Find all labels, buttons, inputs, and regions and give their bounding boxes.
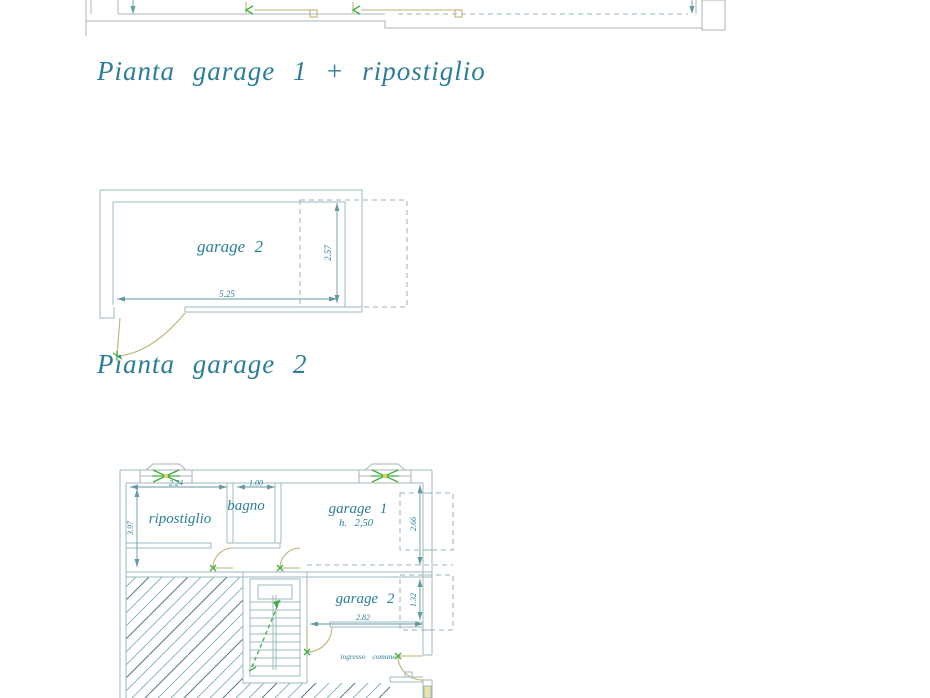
room-label-garage2: garage 2 bbox=[336, 591, 395, 607]
dim-garage2-opening: 1.32 bbox=[409, 579, 423, 620]
dim-bagno-width: 1.00 bbox=[237, 479, 275, 490]
drawing-sheet: Pianta garage 1 + ripostiglio 2.57 5.25 … bbox=[0, 0, 930, 698]
floor-plan-lower: 2.24 1.00 3.97 2.66 1.32 bbox=[110, 460, 480, 698]
svg-text:2.57: 2.57 bbox=[323, 245, 333, 261]
room-label-ripostiglio: ripostiglio bbox=[149, 511, 212, 527]
dim-height: 2.57 bbox=[323, 203, 340, 303]
door-arc-icon bbox=[210, 548, 233, 571]
door-arc-icon bbox=[304, 627, 332, 655]
room-label-garage1: garage 1 bbox=[329, 501, 388, 517]
dim-garage2-width: 2.82 bbox=[310, 613, 423, 627]
garage-door-dashed-opening bbox=[400, 493, 453, 550]
door-symbol-icon bbox=[353, 2, 462, 17]
dim-width: 5.25 bbox=[117, 289, 337, 302]
dim-arrow-left bbox=[131, 0, 136, 14]
room-label-garage2: garage 2 bbox=[197, 237, 263, 256]
door-arc-icon bbox=[277, 548, 300, 571]
plan-title-garage1-ripostiglio: Pianta garage 1 + ripostiglio bbox=[97, 56, 486, 87]
dim-garage1-opening: 2.66 bbox=[409, 485, 423, 565]
garage-door-dashed-opening bbox=[300, 200, 407, 307]
window-icon bbox=[140, 464, 192, 484]
dim-left-depth: 3.97 bbox=[126, 489, 140, 567]
room-note-garage1-height: h. 2,50 bbox=[339, 518, 374, 529]
stair-direction-arrow-icon bbox=[249, 600, 280, 671]
staircase bbox=[243, 572, 307, 683]
wall-pillar bbox=[702, 0, 725, 30]
plan-title-garage2: Pianta garage 2 bbox=[97, 349, 308, 380]
svg-text:1.32: 1.32 bbox=[409, 593, 418, 607]
svg-text:2.82: 2.82 bbox=[356, 613, 370, 622]
room-label-ingresso-comune: ingresso comune bbox=[340, 652, 396, 661]
floor-plan-garage2: 2.57 5.25 garage 2 bbox=[90, 185, 420, 370]
svg-text:2.66: 2.66 bbox=[409, 517, 418, 531]
door-arc-icon bbox=[395, 653, 423, 680]
svg-text:5.25: 5.25 bbox=[219, 289, 235, 299]
window-icon bbox=[424, 686, 431, 698]
svg-text:2.24: 2.24 bbox=[169, 479, 183, 488]
door-symbol-icon bbox=[246, 2, 317, 17]
floor-plan-garage1-ripostiglio bbox=[80, 0, 740, 45]
room-label-bagno: bagno bbox=[227, 498, 265, 514]
dim-arrow-right bbox=[690, 0, 695, 14]
svg-text:1.00: 1.00 bbox=[249, 479, 263, 488]
window-icon bbox=[359, 464, 411, 484]
svg-text:3.97: 3.97 bbox=[126, 520, 135, 536]
